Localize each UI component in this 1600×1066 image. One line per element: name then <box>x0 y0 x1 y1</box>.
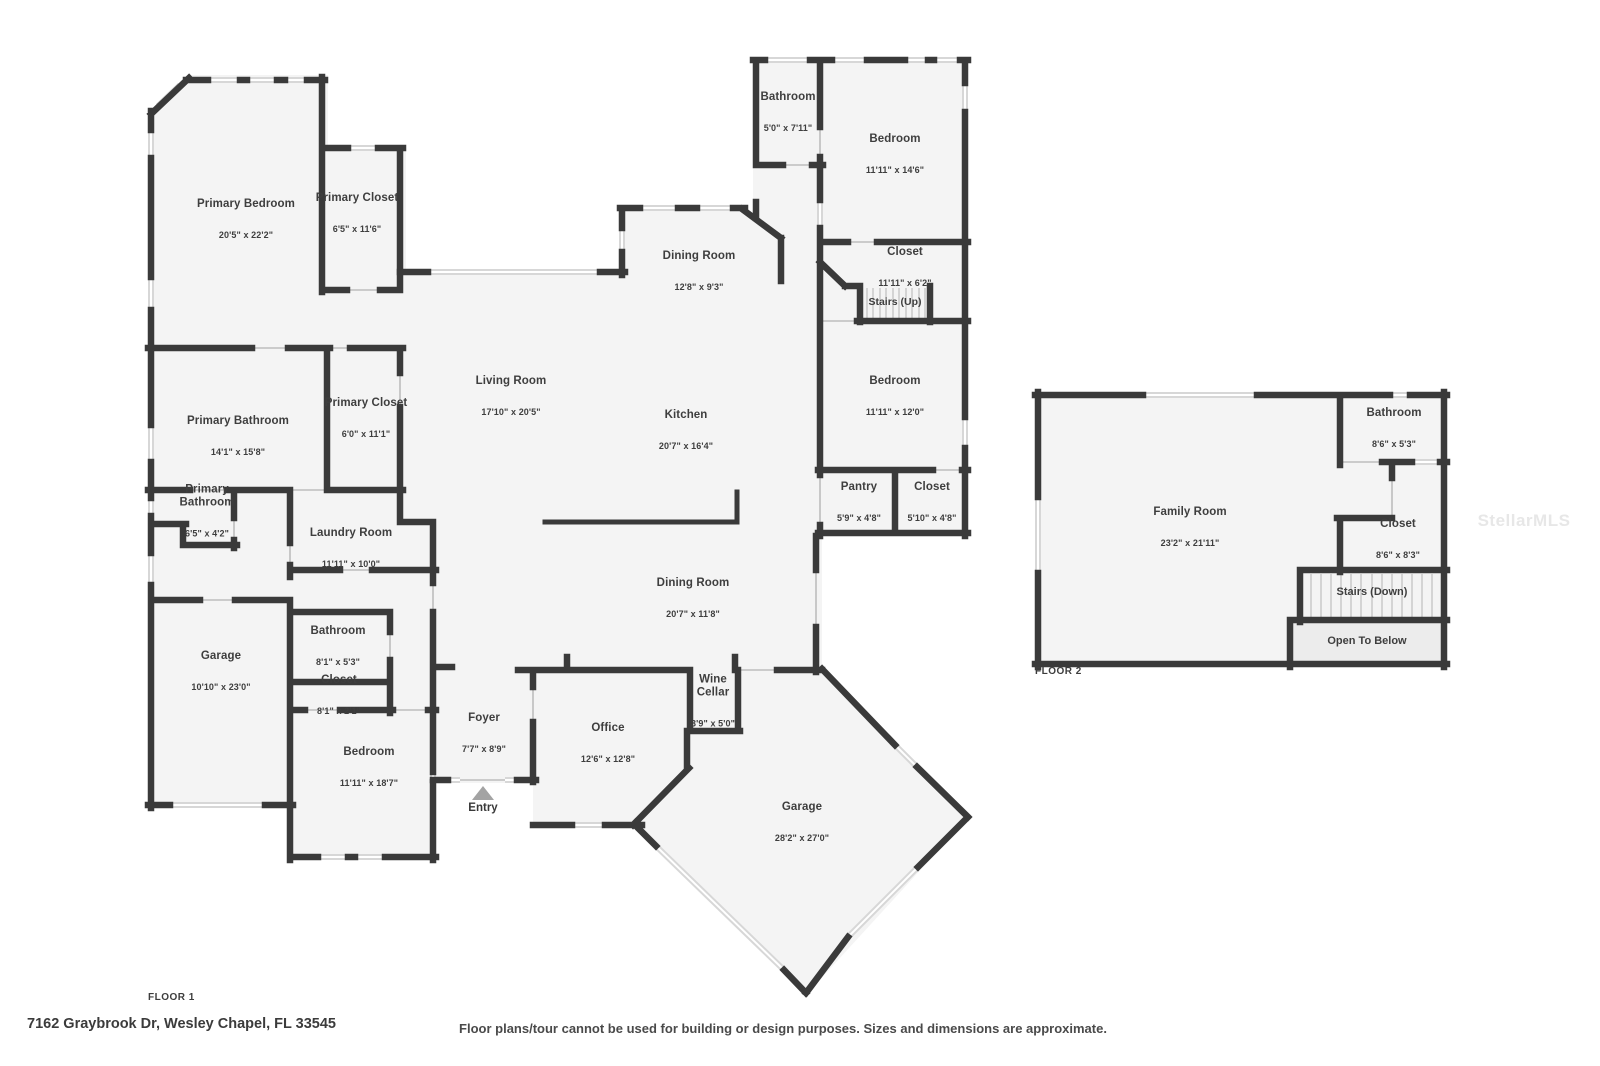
floorplan-drawing <box>0 0 1600 1066</box>
stairs-down-label: Stairs (Down) <box>1337 586 1408 598</box>
entry-arrow-icon <box>472 786 494 800</box>
open-to-below-label: Open To Below <box>1327 635 1406 647</box>
property-address: 7162 Graybrook Dr, Wesley Chapel, FL 335… <box>27 1016 336 1032</box>
stellar-mls-watermark: StellarMLS <box>1478 511 1571 531</box>
entry-label: Entry <box>468 802 497 814</box>
floorplan-page: Primary Bedroom 20'5" x 22'2" Primary Cl… <box>0 0 1600 1066</box>
stairs-up-label: Stairs (Up) <box>868 296 921 308</box>
floor1-tag: FLOOR 1 <box>148 992 195 1003</box>
disclaimer-text: Floor plans/tour cannot be used for buil… <box>459 1021 1107 1036</box>
floor2-tag: FLOOR 2 <box>1035 666 1082 677</box>
